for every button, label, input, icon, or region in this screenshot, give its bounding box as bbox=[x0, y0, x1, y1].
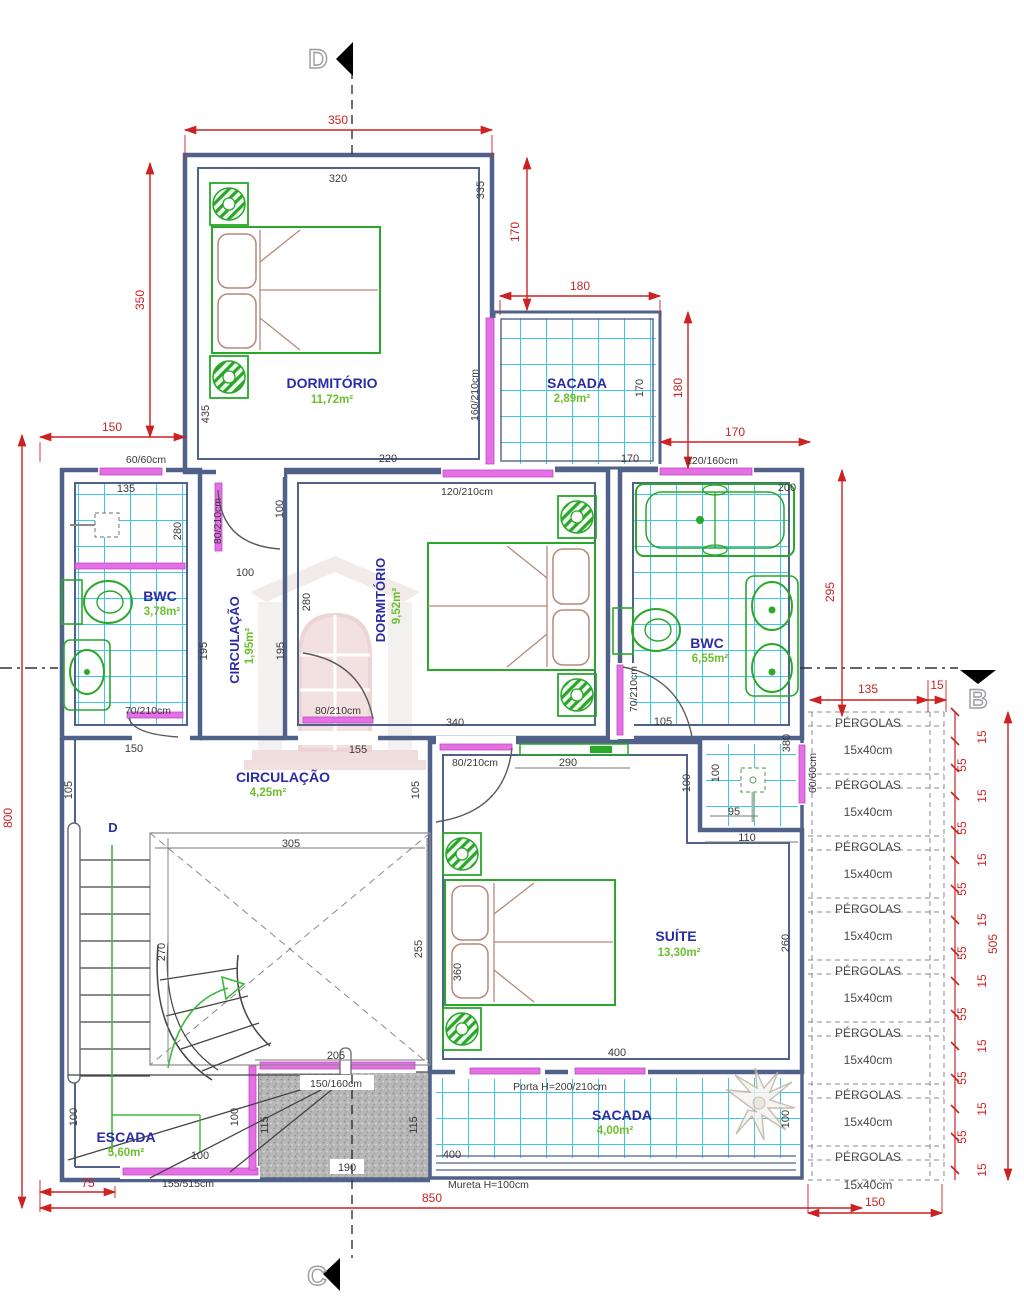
window-120x160 bbox=[660, 468, 752, 475]
section-arrow-d bbox=[336, 42, 353, 76]
dim-220: 220 bbox=[379, 453, 397, 465]
dim-280-bwc1: 280 bbox=[172, 522, 184, 540]
chain-tick: 55 bbox=[955, 882, 969, 896]
porta-note: Porta H=200/210cm bbox=[513, 1081, 607, 1093]
room-name-sacada1: SACADA bbox=[547, 375, 607, 391]
pergola-size: 15x40cm bbox=[844, 805, 893, 819]
dim-100-a: 100 bbox=[274, 500, 286, 518]
sacada2-door-b bbox=[575, 1068, 645, 1074]
chain-tick: 15 bbox=[975, 853, 989, 867]
sacada2-door-a bbox=[470, 1068, 540, 1074]
shelf-item bbox=[590, 746, 612, 753]
room-area-bwc1: 3,78m² bbox=[144, 606, 181, 618]
chain-tick: 15 bbox=[975, 1102, 989, 1116]
window-label-150x160: 150/160cm bbox=[310, 1078, 362, 1090]
window-120x210 bbox=[443, 470, 553, 477]
dim-135-pergola: 135 bbox=[858, 682, 878, 696]
chain-tick: 55 bbox=[955, 946, 969, 960]
room-name-suite: SUÍTE bbox=[655, 928, 696, 944]
pergola-label: PÉRGOLAS bbox=[835, 1025, 901, 1040]
section-marker-d: D bbox=[308, 44, 328, 74]
shower-partition-bwc1 bbox=[75, 563, 185, 569]
dim-800-left: 800 bbox=[1, 808, 15, 828]
dim-180-sacada-v: 180 bbox=[671, 378, 685, 398]
room-name-circ1: CIRCULAÇÃO bbox=[227, 596, 242, 683]
bwc2-tiles bbox=[633, 483, 789, 726]
dim-205: 205 bbox=[327, 1050, 345, 1062]
dim-260: 260 bbox=[780, 934, 792, 952]
dim-350-top: 350 bbox=[328, 113, 348, 127]
door-label-80-circ1: 80/210cm bbox=[212, 498, 224, 544]
section-marker-b: B bbox=[968, 684, 988, 714]
dim-195-a: 195 bbox=[198, 642, 210, 660]
dim-75-escada: 75 bbox=[81, 1176, 95, 1190]
window-label-120x160: 120/160cm bbox=[686, 455, 738, 467]
dim-100-escada-a: 100 bbox=[68, 1108, 80, 1126]
pergola-label: PÉRGOLAS bbox=[835, 715, 901, 730]
dim-105-a: 105 bbox=[410, 781, 422, 799]
chain-tick: 55 bbox=[955, 758, 969, 772]
section-marker-c: C bbox=[307, 1261, 327, 1291]
dim-270: 270 bbox=[156, 943, 168, 961]
dim-335: 335 bbox=[475, 181, 487, 199]
room-area-circ2: 4,25m² bbox=[250, 787, 287, 799]
dim-255: 255 bbox=[413, 940, 425, 958]
door-leaf-bwc2 bbox=[617, 665, 623, 735]
room-name-dorm2: DORMITÓRIO bbox=[373, 558, 388, 643]
dim-180-sacada-h: 180 bbox=[570, 279, 590, 293]
nightstand-dorm2-top bbox=[558, 496, 596, 538]
stair-section-ref: D bbox=[108, 820, 117, 835]
window-160x210 bbox=[486, 318, 494, 464]
chain-tick: 15 bbox=[975, 730, 989, 744]
pergola-label: PÉRGOLAS bbox=[835, 901, 901, 916]
dim-115-b: 115 bbox=[408, 1116, 420, 1134]
nightstand-suite-bottom bbox=[443, 1008, 481, 1050]
dim-380: 380 bbox=[781, 734, 793, 752]
section-arrow-b bbox=[960, 670, 996, 684]
dim-280-dorm2: 280 bbox=[301, 593, 313, 611]
void-cross bbox=[150, 833, 430, 1065]
chain-tick: 15 bbox=[975, 913, 989, 927]
dim-170-sacada-b: 170 bbox=[621, 453, 639, 465]
room-area-sacada2: 4,00m² bbox=[597, 1125, 634, 1137]
dim-400-sacada2: 400 bbox=[443, 1149, 461, 1161]
dim-200: 200 bbox=[778, 482, 796, 494]
nightstand-dorm1-bottom bbox=[210, 356, 248, 398]
room-area-circ1: 1,95m² bbox=[244, 628, 256, 665]
dim-435: 435 bbox=[200, 405, 212, 423]
door-label-80-suite: 80/210cm bbox=[452, 757, 498, 769]
sacada1-tiles bbox=[500, 318, 656, 464]
room-name-bwc1: BWC bbox=[143, 588, 176, 604]
dim-100-escada-b: 100 bbox=[229, 1108, 241, 1126]
door-label-80-dorm2: 80/210cm bbox=[315, 705, 361, 717]
dim-150-bwc1-bottom: 150 bbox=[125, 743, 143, 755]
chain-tick: 55 bbox=[955, 1007, 969, 1021]
nightstand-dorm2-bottom bbox=[558, 674, 596, 716]
room-name-circ2: CIRCULAÇÃO bbox=[236, 768, 330, 785]
dim-305: 305 bbox=[282, 838, 300, 850]
mureta-note: Mureta H=100cm bbox=[448, 1179, 529, 1191]
dim-135-bwc1: 135 bbox=[117, 483, 135, 495]
dim-850-bottom: 850 bbox=[422, 1191, 442, 1205]
pergola-size: 15x40cm bbox=[844, 867, 893, 881]
room-name-dorm1: DORMITÓRIO bbox=[287, 374, 378, 391]
bed-dorm1 bbox=[212, 227, 380, 353]
dim-320: 320 bbox=[329, 173, 347, 185]
dim-170-right-dorm1: 170 bbox=[508, 222, 522, 242]
dim-360: 360 bbox=[452, 963, 464, 981]
pergola-size: 15x40cm bbox=[844, 1178, 893, 1192]
dim-290: 290 bbox=[559, 757, 577, 769]
chain-tick: 55 bbox=[955, 1071, 969, 1085]
chain-tick: 15 bbox=[975, 974, 989, 988]
room-name-sacada2: SACADA bbox=[592, 1107, 652, 1123]
bed-dorm2 bbox=[428, 543, 595, 670]
door-leaf-suite bbox=[440, 744, 512, 750]
window-label-120x210: 120/210cm bbox=[441, 486, 493, 498]
door-label-70-bwc2: 70/210cm bbox=[628, 666, 640, 712]
room-name-bwc2: BWC bbox=[690, 635, 723, 651]
pergola-size: 15x40cm bbox=[844, 991, 893, 1005]
dim-100-c: 100 bbox=[681, 774, 693, 792]
nightstand-suite-top bbox=[443, 833, 481, 875]
dim-150-pergola-bottom: 150 bbox=[865, 1195, 885, 1209]
chain-tick: 15 bbox=[975, 789, 989, 803]
door-leaf-dorm2 bbox=[303, 717, 373, 723]
dim-400-suite: 400 bbox=[608, 1047, 626, 1059]
stair-walk-line bbox=[112, 845, 244, 1152]
dim-350-left: 350 bbox=[133, 290, 147, 310]
dim-155: 155 bbox=[349, 744, 367, 756]
dim-340: 340 bbox=[446, 717, 464, 729]
room-area-suite: 13,30m² bbox=[658, 947, 701, 959]
window-label-60x60-shower: 60/60cm bbox=[807, 753, 819, 794]
pergola-size: 15x40cm bbox=[844, 743, 893, 757]
dim-105-b: 105 bbox=[63, 781, 75, 799]
dim-100-d: 100 bbox=[710, 764, 722, 782]
window-label-60x60-bwc1: 60/60cm bbox=[126, 454, 167, 466]
pergola-label: PÉRGOLAS bbox=[835, 839, 901, 854]
dim-100-b: 100 bbox=[236, 567, 254, 579]
window-155x515 bbox=[123, 1168, 258, 1175]
dim-150-left: 150 bbox=[102, 420, 122, 434]
room-area-dorm1: 11,72m² bbox=[311, 394, 353, 406]
window-60x60-bwc1 bbox=[100, 468, 162, 475]
pergola-size: 15x40cm bbox=[844, 929, 893, 943]
dim-505-right: 505 bbox=[986, 934, 1000, 954]
pergola-size: 15x40cm bbox=[844, 1115, 893, 1129]
pergola-label: PÉRGOLAS bbox=[835, 1149, 901, 1164]
pergola-label: PÉRGOLAS bbox=[835, 777, 901, 792]
dim-295-bwc2: 295 bbox=[823, 582, 837, 602]
floor-plan: D C B 350 350 150 170 bbox=[0, 0, 1024, 1300]
pergola-label: PÉRGOLAS bbox=[835, 1087, 901, 1102]
window-60x60-shower bbox=[799, 745, 805, 803]
room-name-escada: ESCADA bbox=[96, 1129, 155, 1145]
dim-110: 110 bbox=[738, 832, 756, 844]
chain-tick: 15 bbox=[975, 1039, 989, 1053]
room-area-sacada1: 2,89m² bbox=[554, 393, 591, 405]
dim-190: 190 bbox=[338, 1162, 356, 1174]
nightstand-dorm1-top bbox=[210, 183, 248, 225]
dim-170-sacada-a: 170 bbox=[634, 379, 646, 397]
dim-170-right-h: 170 bbox=[725, 425, 745, 439]
window-label-160x210: 160/210cm bbox=[469, 369, 481, 421]
room-area-escada: 5,60m² bbox=[108, 1147, 145, 1159]
dim-95: 95 bbox=[728, 806, 740, 818]
handrail-left bbox=[68, 823, 80, 1083]
room-area-bwc2: 6,55m² bbox=[692, 653, 729, 665]
chain-tick: 55 bbox=[955, 821, 969, 835]
pergola-size: 15x40cm bbox=[844, 1053, 893, 1067]
pergola-label: PÉRGOLAS bbox=[835, 963, 901, 978]
room-area-dorm2: 9,52m² bbox=[391, 588, 403, 625]
dim-100-escada-c: 100 bbox=[191, 1150, 209, 1162]
dim-100-sacada2: 100 bbox=[780, 1110, 792, 1128]
door-arc-circ1 bbox=[218, 490, 280, 549]
dim-195-b: 195 bbox=[275, 642, 287, 660]
door-label-70-bwc1: 70/210cm bbox=[125, 705, 171, 717]
window-label-155x515: 155/515cm bbox=[162, 1178, 214, 1190]
dim-15-pergola: 15 bbox=[930, 678, 944, 692]
dim-105-c: 105 bbox=[654, 716, 672, 728]
dim-115-a: 115 bbox=[259, 1116, 271, 1134]
chain-tick: 55 bbox=[955, 1130, 969, 1144]
chain-tick: 15 bbox=[975, 1163, 989, 1177]
bed-suite bbox=[445, 880, 615, 1005]
